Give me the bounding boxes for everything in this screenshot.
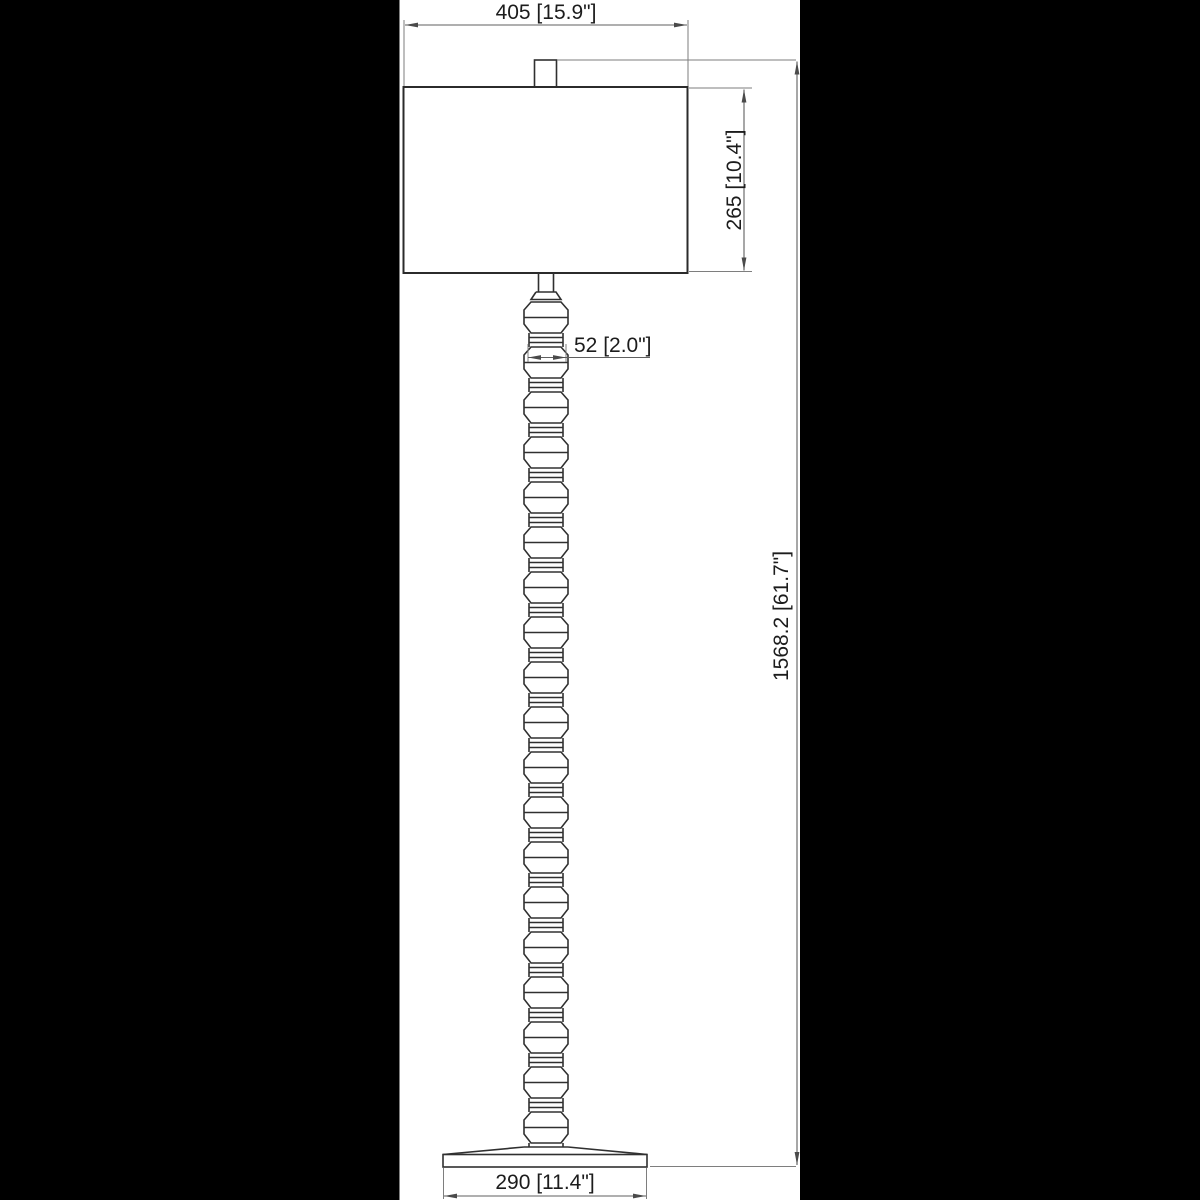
column-width-label: 52 [2.0"] [574, 334, 652, 357]
spindle-column [524, 302, 568, 1143]
screenshot-stage: 405 [15.9"] 265 [10.4"] 52 [2.0"] 1568.2… [0, 0, 1200, 1200]
dimension-drawing: 405 [15.9"] 265 [10.4"] 52 [2.0"] 1568.2… [0, 0, 1200, 1200]
shade-height-label: 265 [10.4"] [723, 130, 746, 231]
overall-height-label: 1568.2 [61.7"] [770, 551, 793, 681]
spindle-path [524, 302, 568, 1143]
shade-outline [404, 87, 688, 273]
base-width-label: 290 [11.4"] [495, 1171, 594, 1194]
shade-width-label: 405 [15.9"] [496, 1, 597, 24]
